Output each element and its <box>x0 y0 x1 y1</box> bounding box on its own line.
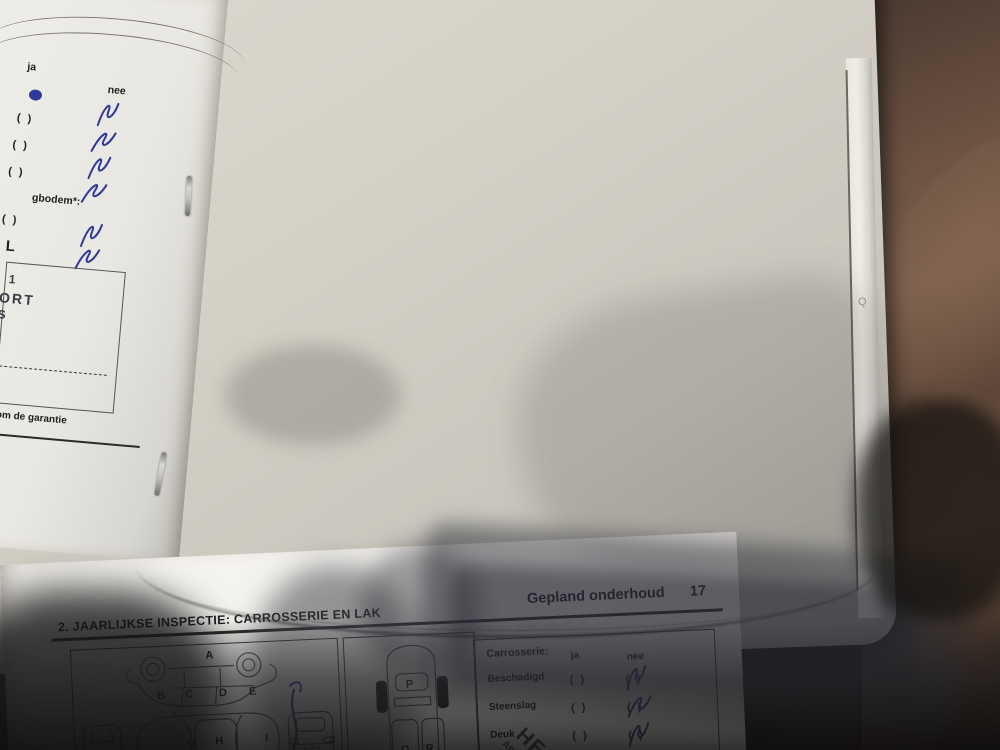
left-bodem-fragment: gbodem*: <box>32 192 81 208</box>
left-garantie-fragment: d om de garantie <box>0 409 67 427</box>
photo-of-service-booklet: Q ja nee ( ) ( ) ( ) gbodem*: ( ) L 1 OR… <box>0 0 1000 750</box>
section-header: Gepland onderhoud <box>527 585 665 607</box>
underbody-diagram: P Q R S <box>344 633 483 750</box>
checklist-col-ja: ja <box>570 650 579 661</box>
letter-b: B <box>157 690 166 702</box>
letter-p: P <box>406 678 414 690</box>
checklist-heading: Carrosserie: <box>486 645 548 660</box>
checklist-ja-paren-0: ( ) <box>570 674 587 687</box>
left-paren-3: ( ) <box>8 166 25 179</box>
checklist-row-label: Beschadigd <box>487 671 544 685</box>
checklist-ja-paren-1: ( ) <box>571 702 588 715</box>
left-ja-header: ja <box>27 61 37 74</box>
left-fragment-l: L <box>5 238 16 256</box>
letter-h: H <box>215 735 224 747</box>
checklist-row-label: Deuk <box>490 729 515 741</box>
left-fragment-ort: ORT <box>0 289 35 308</box>
letter-r: R <box>426 743 435 750</box>
carrosserie-checklist-box: Carrosserie: ja nee Beschadigd ( ) ( ) S… <box>473 629 725 750</box>
left-filled-ja-mark <box>29 89 43 101</box>
letter-c: C <box>185 688 194 700</box>
next-page-letter-fragment: Q <box>858 296 872 312</box>
left-paren-4: ( ) <box>2 213 19 226</box>
checklist-row-label: Steenslag <box>489 700 537 713</box>
service-book-page-17: 2. JAARLIJKSE INSPECTIE: CARROSSERIE EN … <box>0 532 762 750</box>
left-paren-2: ( ) <box>12 139 29 152</box>
letter-g: G <box>187 738 196 750</box>
page-number: 17 <box>690 583 707 600</box>
left-nee-header: nee <box>107 84 126 98</box>
letter-a: A <box>205 649 214 661</box>
underbody-diagram-box: P Q R S <box>343 632 484 750</box>
left-fragment-1: 1 <box>8 272 16 287</box>
left-paren-1: ( ) <box>16 112 33 125</box>
left-stamp-box <box>0 262 126 414</box>
check-kras-nee <box>628 744 661 750</box>
left-bottom-rule <box>0 432 140 448</box>
checklist-ja-paren-2: ( ) <box>572 729 589 742</box>
left-check-4 <box>77 175 113 212</box>
letter-q: Q <box>401 744 411 750</box>
car-front-view <box>82 725 122 750</box>
letter-d: D <box>219 687 228 699</box>
